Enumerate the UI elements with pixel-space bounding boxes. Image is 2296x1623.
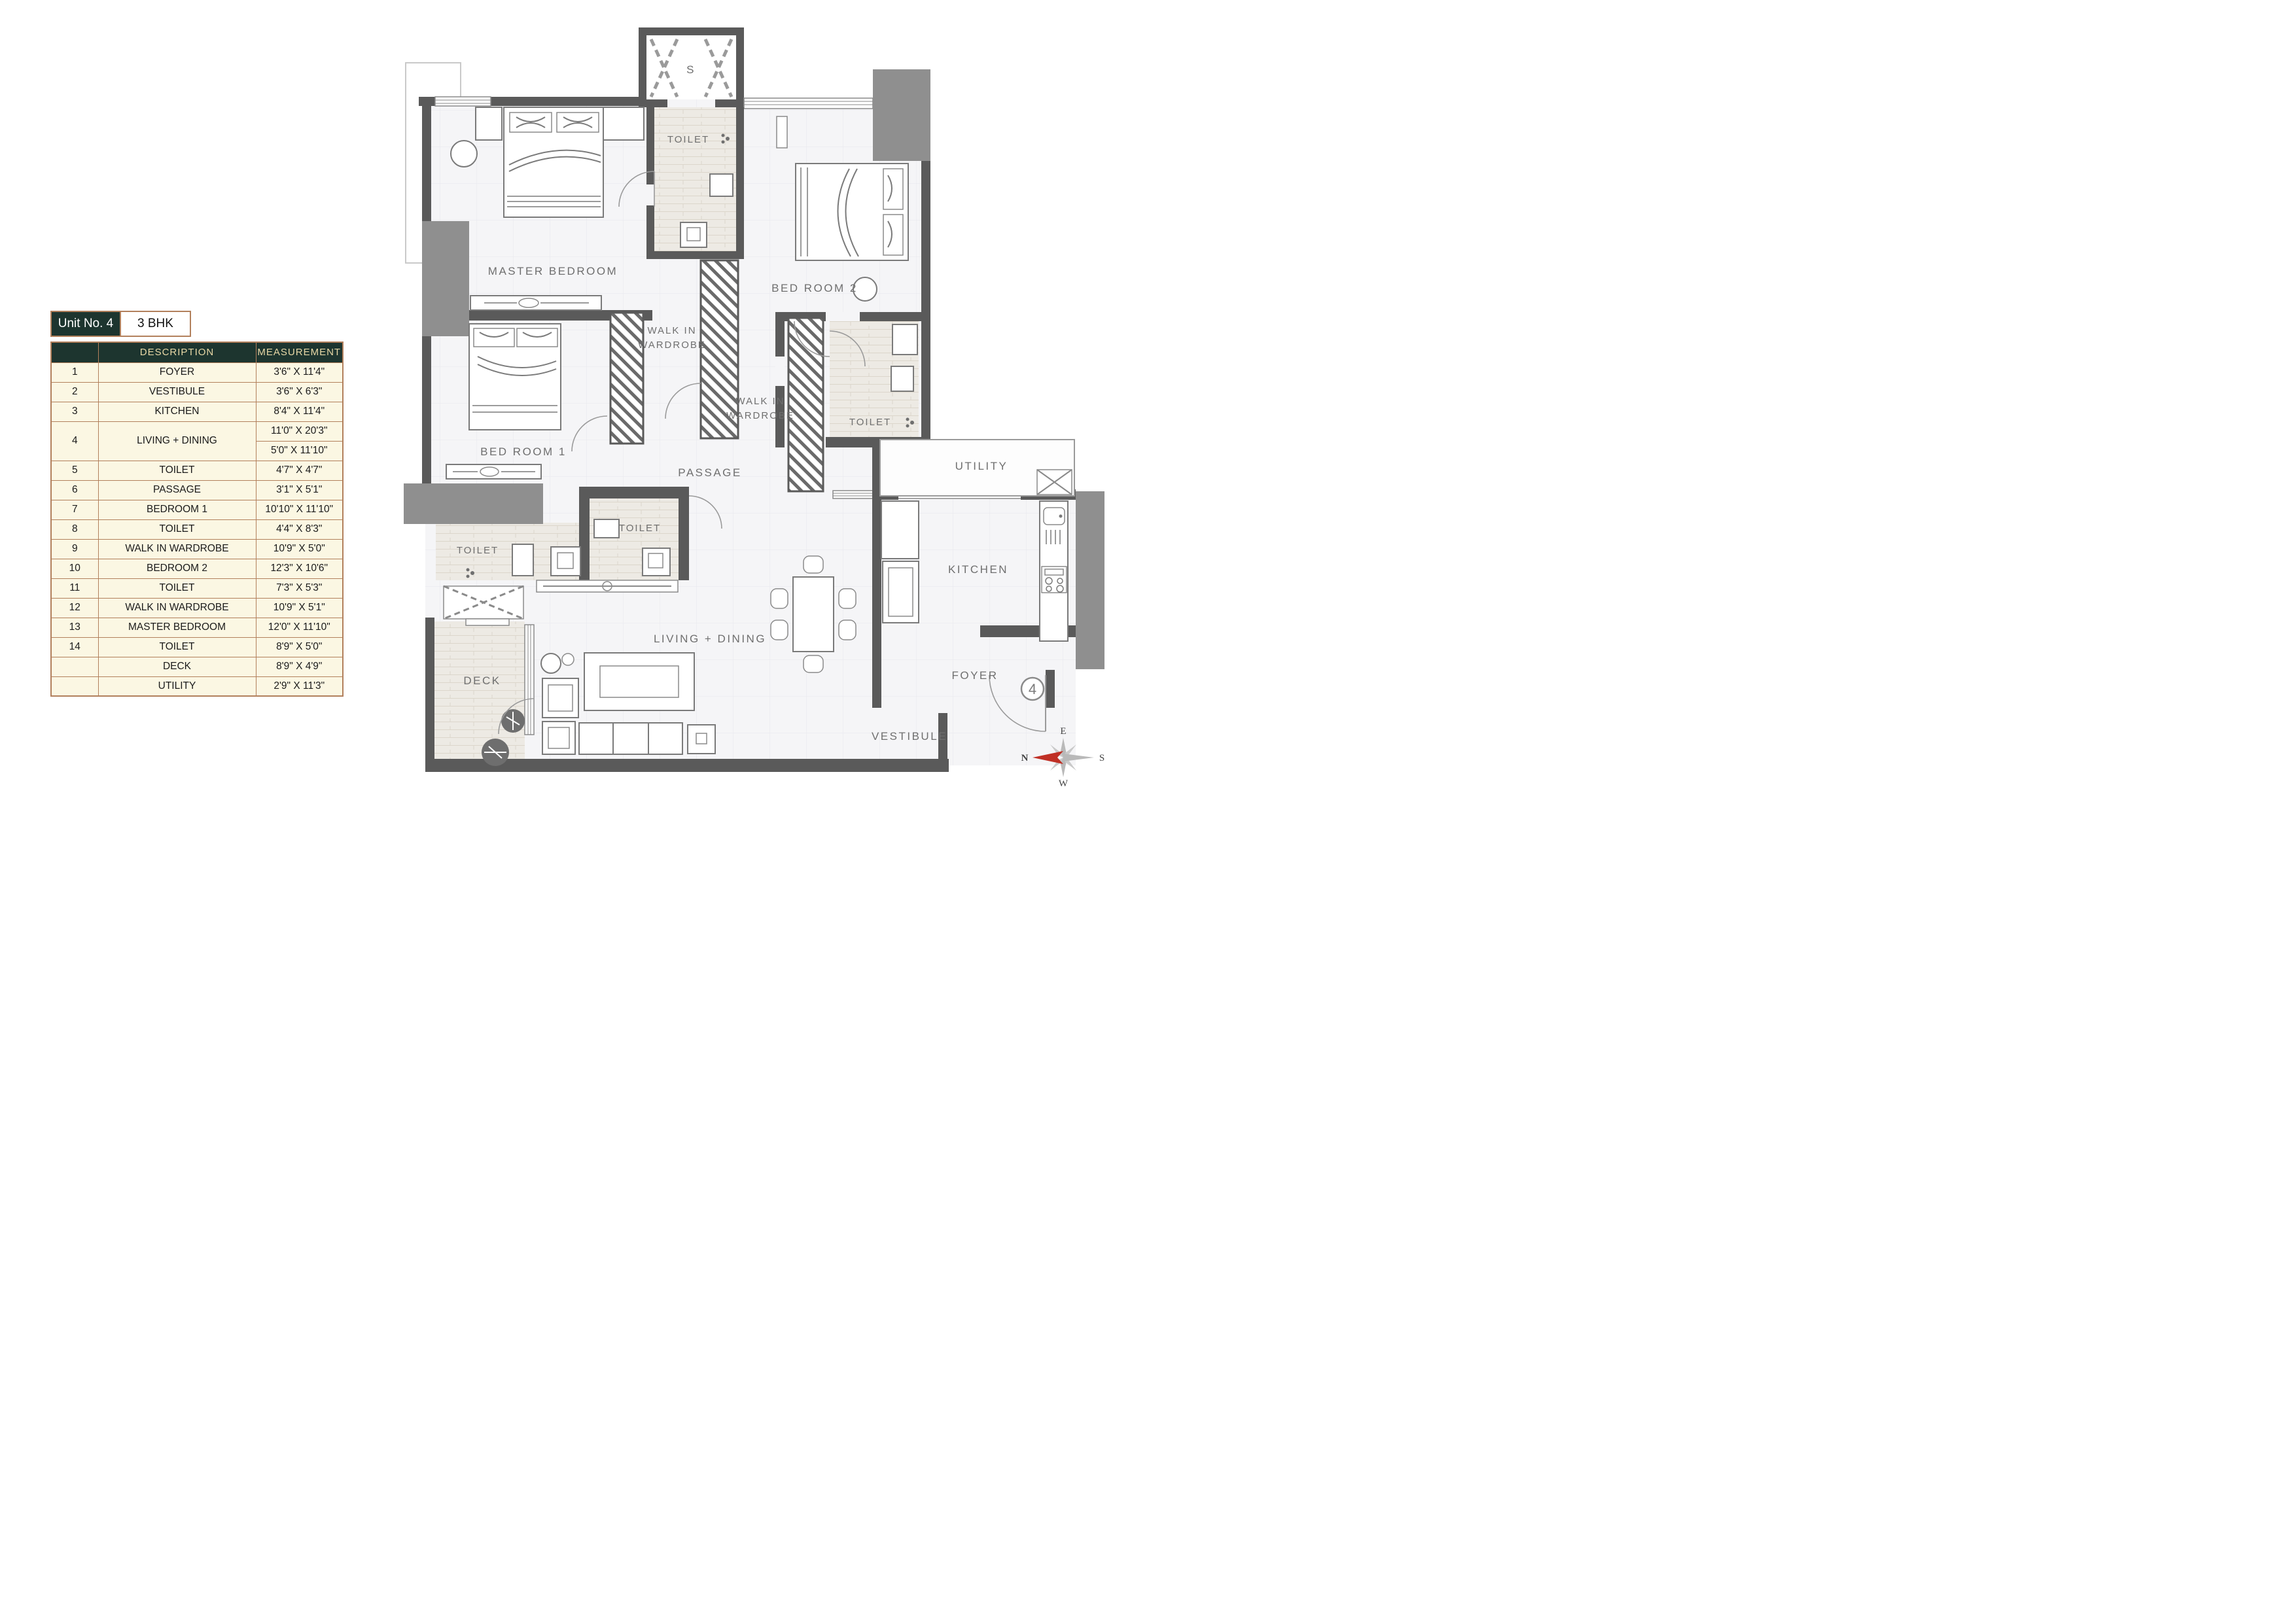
bed-room-1-label: BED ROOM 1 (480, 445, 567, 458)
toilet-bed2-label: TOILET (849, 417, 891, 428)
washbasin (892, 324, 917, 355)
sofa (579, 723, 682, 754)
floor-plan-drawing: S TOILET MASTER BEDROOM BED ROOM 2 WALK … (0, 0, 1148, 811)
svg-text:4: 4 (1029, 681, 1036, 697)
vestibule-label: VESTIBULE (872, 730, 947, 742)
shower-tray (512, 544, 533, 576)
svg-text:S: S (1099, 753, 1104, 763)
svg-text:N: N (1021, 753, 1029, 763)
kitchen-label: KITCHEN (948, 563, 1008, 576)
shaft-label: S (686, 63, 696, 76)
bed-room-2-label: BED ROOM 2 (771, 282, 858, 294)
duct-block-toilet (404, 483, 543, 524)
duct-block-left (422, 221, 469, 336)
utility-label: UTILITY (955, 460, 1008, 472)
washbasin (710, 174, 733, 196)
toilet-common-label: TOILET (619, 523, 661, 534)
svg-text:E: E (1060, 726, 1066, 737)
svg-text:WARDROBE: WARDROBE (726, 410, 794, 421)
floor-deck (434, 621, 525, 760)
living-dining-label: LIVING + DINING (654, 633, 766, 645)
toilet-bed1-label: TOILET (457, 545, 499, 556)
foyer-label: FOYER (951, 669, 998, 682)
svg-text:WARDROBE: WARDROBE (638, 340, 706, 351)
niche (777, 116, 787, 148)
duct-block-topright (873, 69, 930, 161)
duct-block-right (1076, 491, 1104, 669)
washbasin (594, 519, 619, 538)
side-table (541, 654, 561, 673)
walk-in-wardrobe-2-label: WALK IN (735, 396, 785, 407)
deck-label: DECK (463, 674, 501, 687)
toilet-master-label: TOILET (667, 134, 709, 145)
round-table (451, 141, 477, 167)
unit-number-circle: 4 (1021, 678, 1044, 700)
floor-plan-page: Unit No. 4 3 BHK DESCRIPTION MEASUREMENT… (0, 0, 1148, 811)
tall-unit (881, 501, 919, 559)
side-table (476, 107, 502, 140)
side-table (603, 107, 644, 140)
passage-label: PASSAGE (678, 466, 742, 479)
master-bedroom-label: MASTER BEDROOM (488, 265, 618, 277)
wc (891, 366, 913, 391)
walk-in-wardrobe-1-label: WALK IN (647, 325, 696, 336)
pillow (883, 215, 903, 255)
svg-text:W: W (1059, 778, 1069, 789)
dining-table (793, 577, 834, 652)
pillow (883, 169, 903, 209)
